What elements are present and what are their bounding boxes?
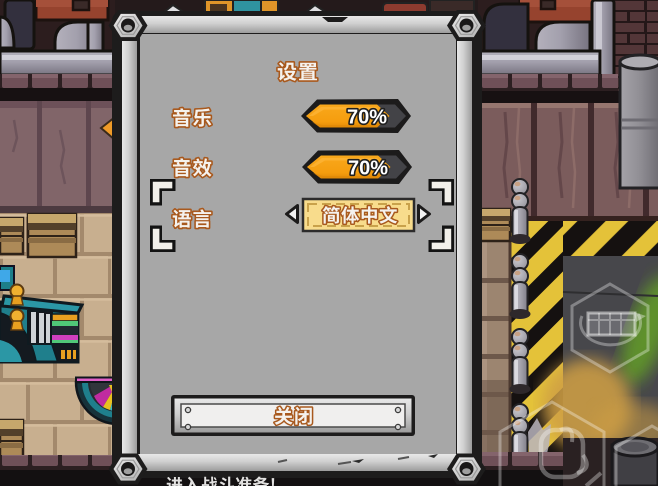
svg-text:70%: 70% (348, 158, 388, 180)
svg-text:70%: 70% (347, 107, 387, 129)
